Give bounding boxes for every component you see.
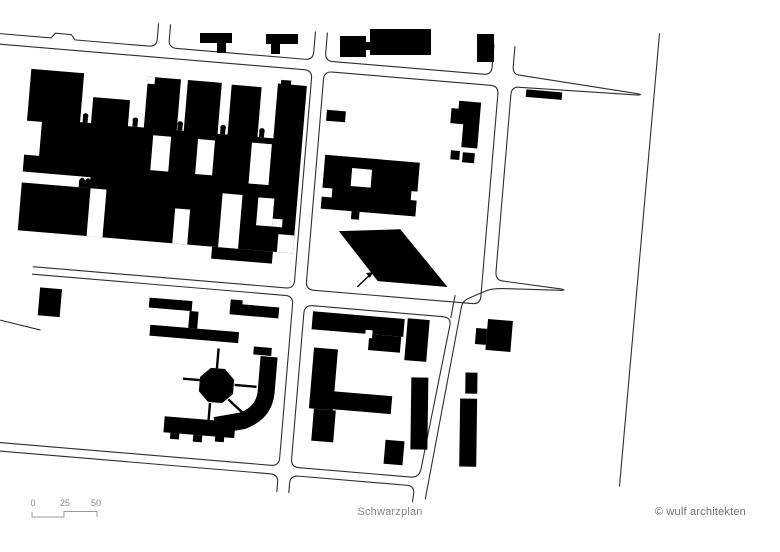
schwarzplan-page: 0 25 50 Schwarzplan © wulf architekten [0,0,780,552]
building-group-southwest [28,283,279,448]
building-complex-northwest [13,59,307,266]
building-central-courtyard [314,109,429,224]
building-northeast-small [447,100,481,163]
building-street-bar [526,89,563,99]
credit: © wulf architekten [655,506,746,518]
building-group-southeast [453,317,513,470]
building-group-south-central [301,310,438,467]
building-group-top-strip [200,29,494,62]
site-plan-map [0,0,780,552]
highlighted-building-parallelogram [335,224,452,287]
northeast-arrow-icon [357,271,373,289]
street-network [0,0,660,521]
